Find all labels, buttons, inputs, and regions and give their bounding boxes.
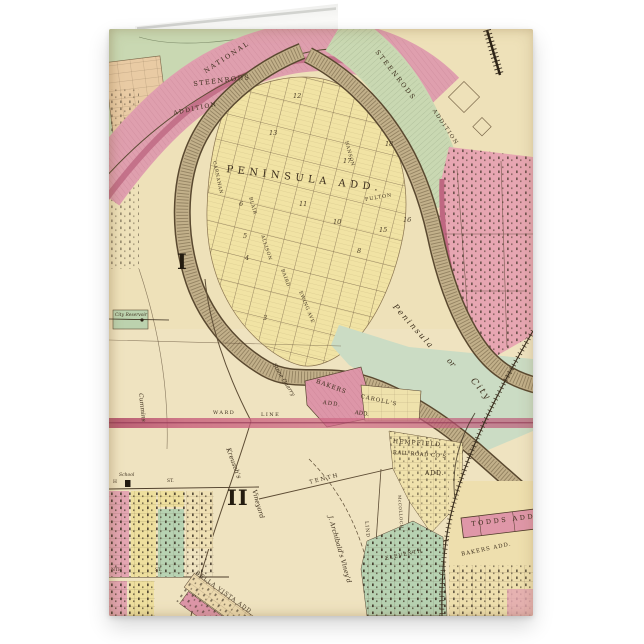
block-number: 6 <box>239 201 243 208</box>
block-number: 16 <box>403 217 411 224</box>
block-number: 5 <box>243 233 247 240</box>
product-page: { "product": { "kind": "folded greeting … <box>0 0 644 644</box>
greeting-card-front[interactable]: NATIONAL STEENRODS ADDITION STEENRODS AD… <box>109 29 533 616</box>
block-number: 17 <box>343 158 351 165</box>
label-line-word: LINE <box>261 413 280 418</box>
block-number: 10 <box>333 219 341 226</box>
block-number: 12 <box>293 93 301 100</box>
map-artwork <box>109 29 533 616</box>
ward-two-numeral: II <box>227 487 249 508</box>
preview-stage: NATIONAL STEENRODS ADDITION STEENRODS AD… <box>0 0 644 644</box>
label-street-st: ST. <box>167 480 174 485</box>
label-street-st2: ST. <box>155 569 162 574</box>
block-number: 8 <box>357 248 361 255</box>
label-street-h: H <box>113 481 117 486</box>
label-lind-street: LIND <box>362 521 369 539</box>
label-hempfield-add: ADD. <box>425 471 445 477</box>
label-street-nth: NTH <box>111 569 122 574</box>
block-number: 3 <box>263 315 267 322</box>
block-number: 13 <box>269 130 277 137</box>
ward-one-numeral: I <box>177 251 188 272</box>
block-number: 15 <box>379 227 387 234</box>
label-ward-word: WARD <box>213 411 235 416</box>
block-number: 18 <box>385 141 393 148</box>
block-number: 11 <box>299 201 307 208</box>
label-city-reservoir: City Reservoir <box>114 313 148 318</box>
block-number: 4 <box>245 255 249 262</box>
label-school: School <box>119 474 134 479</box>
